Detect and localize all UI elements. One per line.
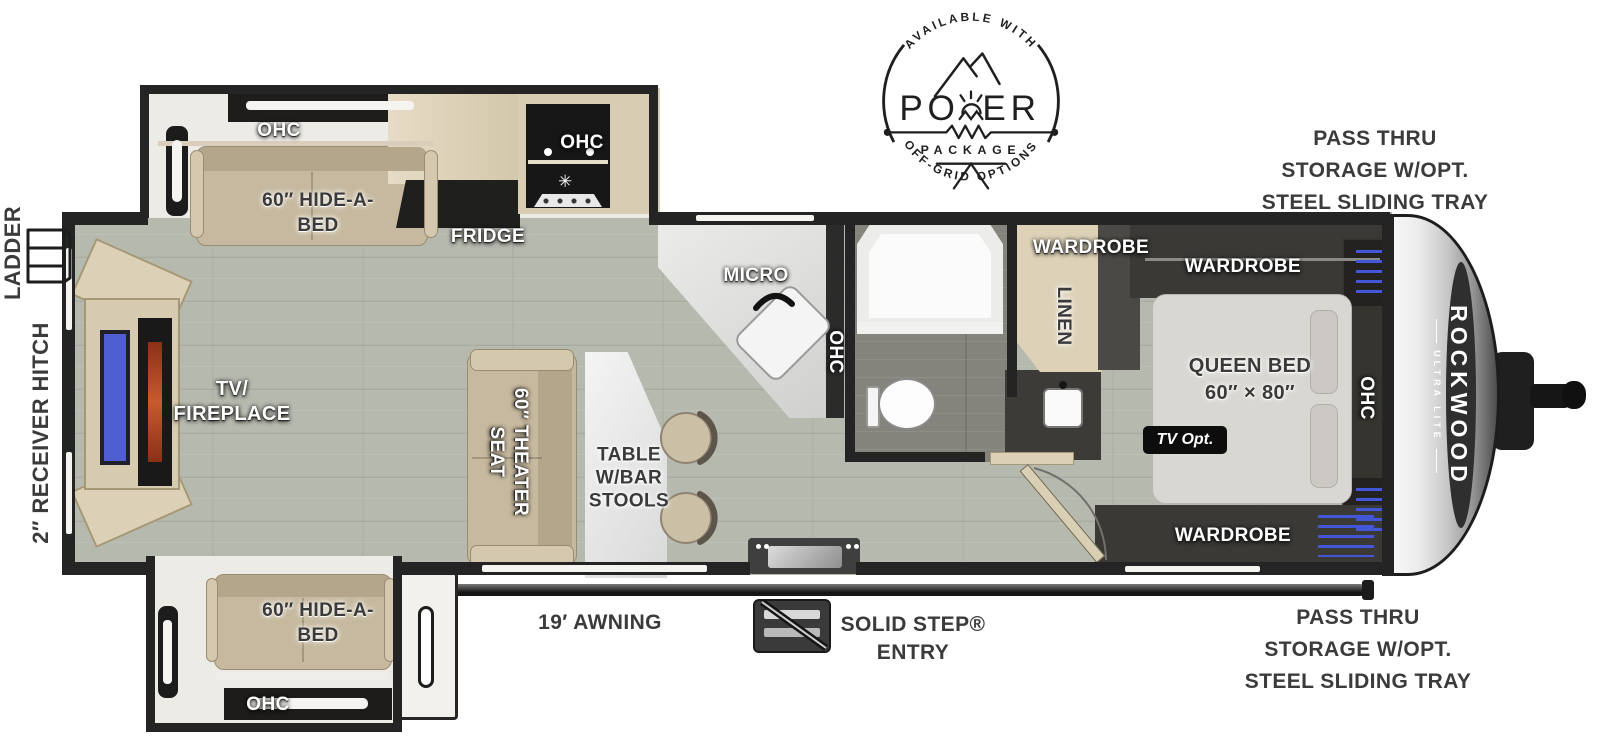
entry-label: SOLID STEP® ENTRY: [841, 611, 986, 667]
badge-top-text: AVAILABLE WITH: [902, 10, 1041, 52]
badge-arc-right: [1038, 45, 1058, 142]
bath-wall-left: [845, 212, 855, 462]
kitchen-faucet-icon: [756, 296, 792, 308]
slideout-top-wall: [140, 85, 658, 94]
power-package-badge: AVAILABLE WITH OFF-GRID OPTIONS PO ER PA…: [876, 6, 1066, 196]
svg-text:AVAILABLE WITH: AVAILABLE WITH: [902, 10, 1041, 52]
stool-back: [700, 414, 715, 462]
hide-a-bed-label-top: 60″ HIDE-A-BED: [262, 188, 374, 238]
floorplan-canvas: AVAILABLE WITH OFF-GRID OPTIONS PO ER PA…: [0, 0, 1600, 748]
receiver-hitch-label: 2″ RECEIVER HITCH: [28, 322, 54, 543]
slideout-top-side-window: [172, 140, 182, 202]
top-wall-window: [696, 215, 814, 221]
badge-package-text: PACKAGE: [921, 143, 1022, 157]
vanity-faucet-icon: [1059, 381, 1067, 389]
ladder-label: LADDER: [0, 206, 26, 300]
bedroom-wardrobe-bottom-label: WARDROBE: [1175, 525, 1291, 547]
brand-series: ULTRA LITE: [1432, 319, 1442, 473]
micro-label: MICRO: [723, 265, 788, 287]
bed-ohc-label: OHC: [1355, 376, 1377, 419]
pass-thru-storage-label-bottom: PASS THRU STORAGE W/OPT. STEEL SLIDING T…: [1245, 602, 1472, 698]
slideout-bottom-wall-left: [146, 556, 155, 732]
tv-fireplace-label: TV/FIREPLACE: [174, 377, 291, 427]
tv-opt-badge: TV Opt.: [1143, 426, 1227, 454]
slideout-bottom-wall: [146, 723, 402, 732]
theater-seat-label: 60″ THEATERSEAT: [484, 388, 532, 516]
exterior-block-window: [418, 606, 434, 688]
door-swing-arc: [1034, 468, 1106, 560]
brand-name: ROCKWOOD: [1445, 305, 1472, 487]
slideout-bottom-wall-right: [393, 556, 402, 732]
slideout-top-wall-left: [140, 85, 149, 218]
slideout-bottom-side-window: [163, 620, 172, 684]
stool-back: [700, 494, 715, 542]
top-wall-rear: [62, 212, 148, 225]
tv-opt-label: TV Opt.: [1157, 431, 1214, 449]
badge-word-left: PO: [899, 89, 959, 128]
entry-step-icon: [752, 598, 838, 654]
bottom-wall-rear: [62, 562, 150, 575]
slideout-top-wall-right: [649, 85, 658, 218]
slideout-top-ohc-label: OHC: [257, 120, 300, 142]
bath-wall-bottom: [845, 452, 985, 462]
bottom-wall-front: [856, 562, 1390, 575]
kitchen-ohc-label: OHC: [560, 132, 603, 154]
fridge-label: FRIDGE: [451, 226, 525, 248]
linen-label: LINEN: [1052, 287, 1074, 346]
pass-thru-storage-label-top: PASS THRU STORAGE W/OPT. STEEL SLIDING T…: [1262, 123, 1489, 219]
living-window: [482, 565, 707, 572]
bath-wall-right: [1007, 212, 1017, 397]
rear-window: [66, 452, 72, 534]
hide-a-bed-label-bottom: 60″ HIDE-A-BED: [262, 598, 374, 648]
front-wall: [1382, 214, 1394, 576]
sink-ohc-label: OHC: [824, 330, 846, 373]
table-label: TABLEW/BARSTOOLS: [589, 444, 669, 513]
bedroom-wardrobe-top-label: WARDROBE: [1185, 256, 1301, 278]
awning-label: 19′ AWNING: [538, 611, 662, 635]
brand-logo: ROCKWOOD ULTRA LITE: [1428, 246, 1476, 546]
badge-word-right: ER: [982, 89, 1040, 128]
slideout-bottom-ohc-label: OHC: [246, 694, 289, 716]
bedroom-window: [1125, 566, 1260, 572]
sun-icon: [960, 92, 983, 120]
queen-bed-label: QUEEN BED60″ × 80″: [1189, 353, 1312, 407]
ladder-icon: [24, 224, 72, 288]
bath-wardrobe-label: WARDROBE: [1033, 237, 1149, 259]
